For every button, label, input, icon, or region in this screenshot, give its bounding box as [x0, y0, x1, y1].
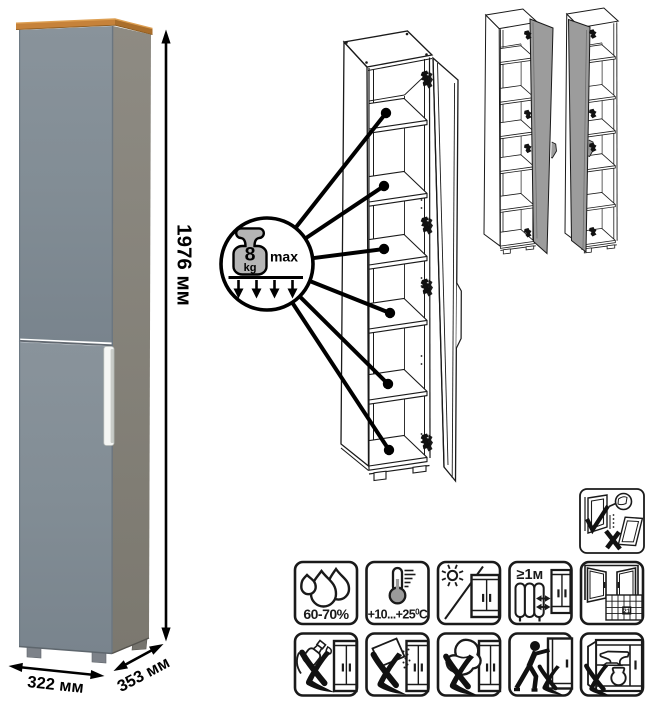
svg-text:+10...+250С: +10...+250С [368, 608, 428, 622]
svg-text:21: 21 [623, 608, 631, 615]
svg-text:max: max [270, 249, 298, 265]
svg-text:≥1м: ≥1м [517, 567, 544, 583]
svg-text:60-70%: 60-70% [303, 606, 349, 622]
svg-text:kg: kg [244, 262, 257, 274]
svg-text:1976 мм: 1976 мм [173, 224, 196, 306]
